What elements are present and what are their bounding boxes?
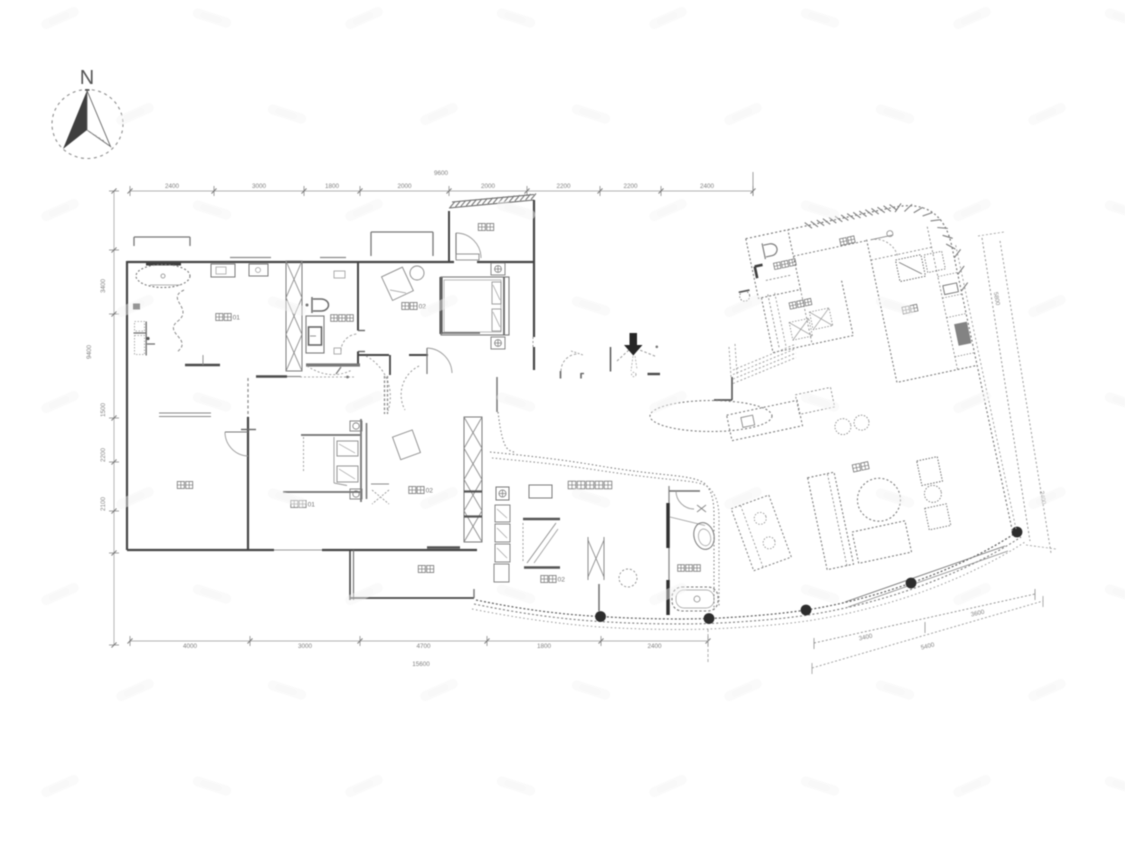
svg-text:2400: 2400 [700, 183, 715, 190]
svg-text:4000: 4000 [183, 643, 198, 650]
svg-text:01: 01 [233, 315, 241, 322]
svg-text:2000: 2000 [481, 183, 496, 190]
svg-text:3000: 3000 [252, 183, 267, 190]
svg-text:4700: 4700 [416, 643, 431, 650]
svg-text:1500: 1500 [100, 403, 107, 418]
svg-text:1800: 1800 [537, 643, 552, 650]
svg-text:01: 01 [308, 502, 316, 509]
svg-text:3400: 3400 [100, 279, 107, 294]
svg-text:2400: 2400 [165, 183, 180, 190]
svg-text:9600: 9600 [434, 170, 449, 177]
svg-text:2200: 2200 [100, 448, 107, 463]
svg-text:2400: 2400 [647, 643, 662, 650]
svg-text:2100: 2100 [100, 497, 107, 512]
svg-text:1800: 1800 [325, 183, 340, 190]
svg-text:2200: 2200 [556, 183, 571, 190]
svg-text:9400: 9400 [86, 345, 93, 360]
svg-text:N: N [80, 67, 94, 89]
svg-text:15600: 15600 [412, 661, 430, 668]
svg-text:02: 02 [558, 577, 566, 584]
svg-text:3000: 3000 [298, 643, 313, 650]
svg-text:02: 02 [426, 488, 434, 495]
svg-text:2200: 2200 [623, 183, 638, 190]
svg-text:2000: 2000 [397, 183, 412, 190]
